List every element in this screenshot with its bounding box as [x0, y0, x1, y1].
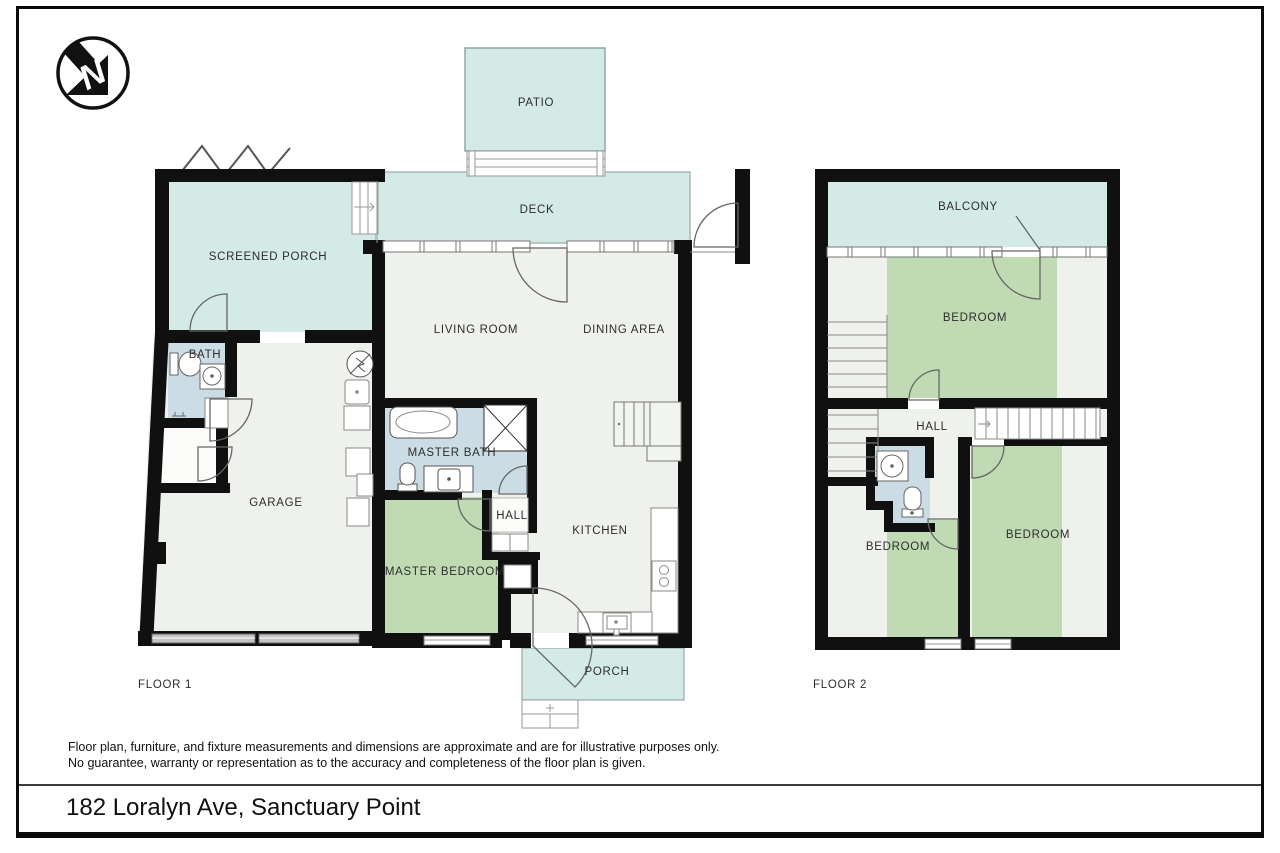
garage-label: GARAGE — [249, 497, 302, 509]
living-room-label: LIVING ROOM — [434, 324, 518, 336]
patio-steps — [467, 151, 605, 176]
floor2-plan — [815, 169, 1120, 650]
north-arrow-icon: N — [58, 38, 128, 108]
disclaimer-text: Floor plan, furniture, and fixture measu… — [68, 740, 720, 771]
floor2-room-bedroom-left-area — [887, 520, 958, 637]
bedroom-top-label: BEDROOM — [943, 312, 1007, 324]
hall-floor1-label: HALL — [496, 510, 528, 522]
master-bedroom-label: MASTER BEDROOM — [385, 566, 505, 578]
living-room-window-band — [383, 241, 674, 252]
hall-floor2-label: HALL — [916, 421, 948, 433]
bedroom-right-label: BEDROOM — [1006, 529, 1070, 541]
porch-steps — [522, 700, 578, 728]
deck-label: DECK — [520, 204, 555, 216]
bedroom-left-label: BEDROOM — [866, 541, 930, 553]
floor1-label: FLOOR 1 — [138, 679, 192, 691]
kitchen-label: KITCHEN — [572, 525, 627, 537]
garage-doors — [152, 634, 359, 643]
floor1-plan — [138, 48, 750, 728]
floor2-label: FLOOR 2 — [813, 679, 867, 691]
balcony-label: BALCONY — [938, 201, 998, 213]
address-title: 182 Loralyn Ave, Sanctuary Point — [66, 794, 420, 822]
floorplan-page: N — [0, 0, 1280, 853]
bath-label: BATH — [189, 349, 222, 361]
master-bath-label: MASTER BATH — [408, 447, 497, 459]
dining-area-label: DINING AREA — [583, 324, 665, 336]
floor2-room-bedroom-top-area — [887, 257, 1057, 398]
deck-steps — [352, 182, 378, 243]
porch-label: PORCH — [584, 666, 629, 678]
balcony-railing — [827, 247, 1107, 257]
kitchen-door-opening — [531, 633, 569, 648]
screened-porch-label: SCREENED PORCH — [209, 251, 327, 263]
floor1-closet-area — [160, 428, 216, 483]
title-separator-line — [16, 784, 1264, 786]
disclaimer-line-2: No guarantee, warranty or representation… — [68, 756, 720, 772]
patio-label: PATIO — [518, 97, 554, 109]
floor1-room-master-bedroom-area — [385, 497, 498, 633]
floorplan-drawing: N — [0, 0, 1280, 853]
disclaimer-line-1: Floor plan, furniture, and fixture measu… — [68, 740, 720, 756]
floor2-room-balcony-area — [827, 182, 1107, 247]
floor2-stairs-right — [975, 408, 1100, 439]
